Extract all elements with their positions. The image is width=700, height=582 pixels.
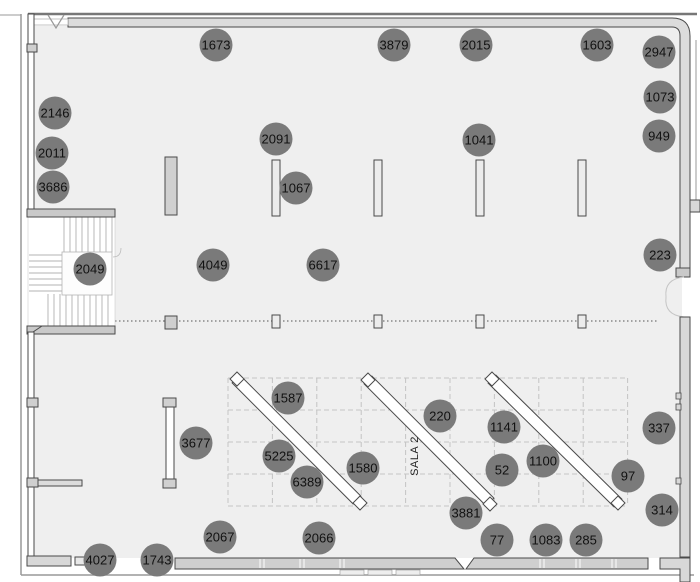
column-base (476, 315, 484, 328)
left-wall-tab-3 (27, 478, 38, 487)
count-marker[interactable] (643, 36, 676, 69)
count-marker[interactable] (644, 81, 677, 114)
count-marker[interactable] (486, 454, 519, 487)
count-marker[interactable] (347, 452, 380, 485)
count-marker[interactable] (200, 29, 233, 62)
left-wall-upper (28, 14, 34, 209)
bottom-wall-center (175, 558, 464, 569)
partition-body (166, 404, 174, 482)
count-marker[interactable] (527, 445, 560, 478)
count-marker[interactable] (481, 524, 514, 557)
stairwell-wall-top (27, 209, 115, 217)
count-marker[interactable] (204, 521, 237, 554)
count-marker[interactable] (272, 382, 305, 415)
count-marker[interactable] (612, 460, 645, 493)
right-wall-end-cap (676, 268, 690, 277)
column-base (272, 315, 280, 328)
column-base (165, 316, 177, 329)
column (578, 160, 586, 216)
count-marker[interactable] (307, 249, 340, 282)
count-marker[interactable] (36, 137, 69, 170)
count-marker[interactable] (450, 497, 483, 530)
right-wall-outer-stub (690, 200, 700, 212)
count-marker[interactable] (37, 171, 70, 204)
count-marker[interactable] (180, 427, 213, 460)
partition-cap-top (163, 398, 176, 407)
right-wall-notch-2 (676, 404, 681, 410)
count-marker[interactable] (280, 172, 313, 205)
count-marker[interactable] (141, 544, 174, 577)
column (272, 160, 280, 216)
count-marker[interactable] (378, 29, 411, 62)
count-marker[interactable] (460, 29, 493, 62)
partition-cap-bottom (163, 479, 176, 488)
exterior-steps (340, 570, 420, 575)
count-marker[interactable] (644, 239, 677, 272)
count-marker[interactable] (463, 124, 496, 157)
count-marker[interactable] (530, 524, 563, 557)
count-marker[interactable] (39, 97, 72, 130)
right-wall-notch-3 (676, 478, 681, 484)
count-marker[interactable] (424, 400, 457, 433)
bottom-wall-right (466, 558, 648, 569)
right-wall-lower (680, 317, 690, 557)
count-marker[interactable] (643, 120, 676, 153)
count-marker[interactable] (197, 249, 230, 282)
column (476, 160, 484, 216)
left-wall-tab-1 (27, 44, 37, 52)
column (374, 160, 382, 216)
right-wall-notch-1 (676, 393, 681, 399)
floor-plan-view: SALA 2 167338792015160329471073214694920… (0, 0, 700, 582)
count-marker[interactable] (260, 123, 293, 156)
count-marker[interactable] (84, 544, 117, 577)
count-marker[interactable] (291, 466, 324, 499)
bottom-wall-left-stub (27, 556, 71, 566)
column-base (578, 315, 586, 328)
count-marker[interactable] (570, 524, 603, 557)
count-marker[interactable] (303, 522, 336, 555)
count-marker[interactable] (74, 253, 107, 286)
column (165, 157, 177, 215)
left-wall-tab-2 (27, 398, 38, 407)
bottom-wall-post (75, 557, 85, 565)
count-marker[interactable] (646, 494, 679, 527)
count-marker[interactable] (263, 440, 296, 473)
count-marker[interactable] (581, 29, 614, 62)
column-base (374, 315, 382, 328)
count-marker[interactable] (488, 411, 521, 444)
room-label: SALA 2 (409, 436, 421, 476)
left-partition-wall (38, 480, 82, 486)
left-wall-lower (28, 332, 34, 557)
count-marker[interactable] (643, 412, 676, 445)
